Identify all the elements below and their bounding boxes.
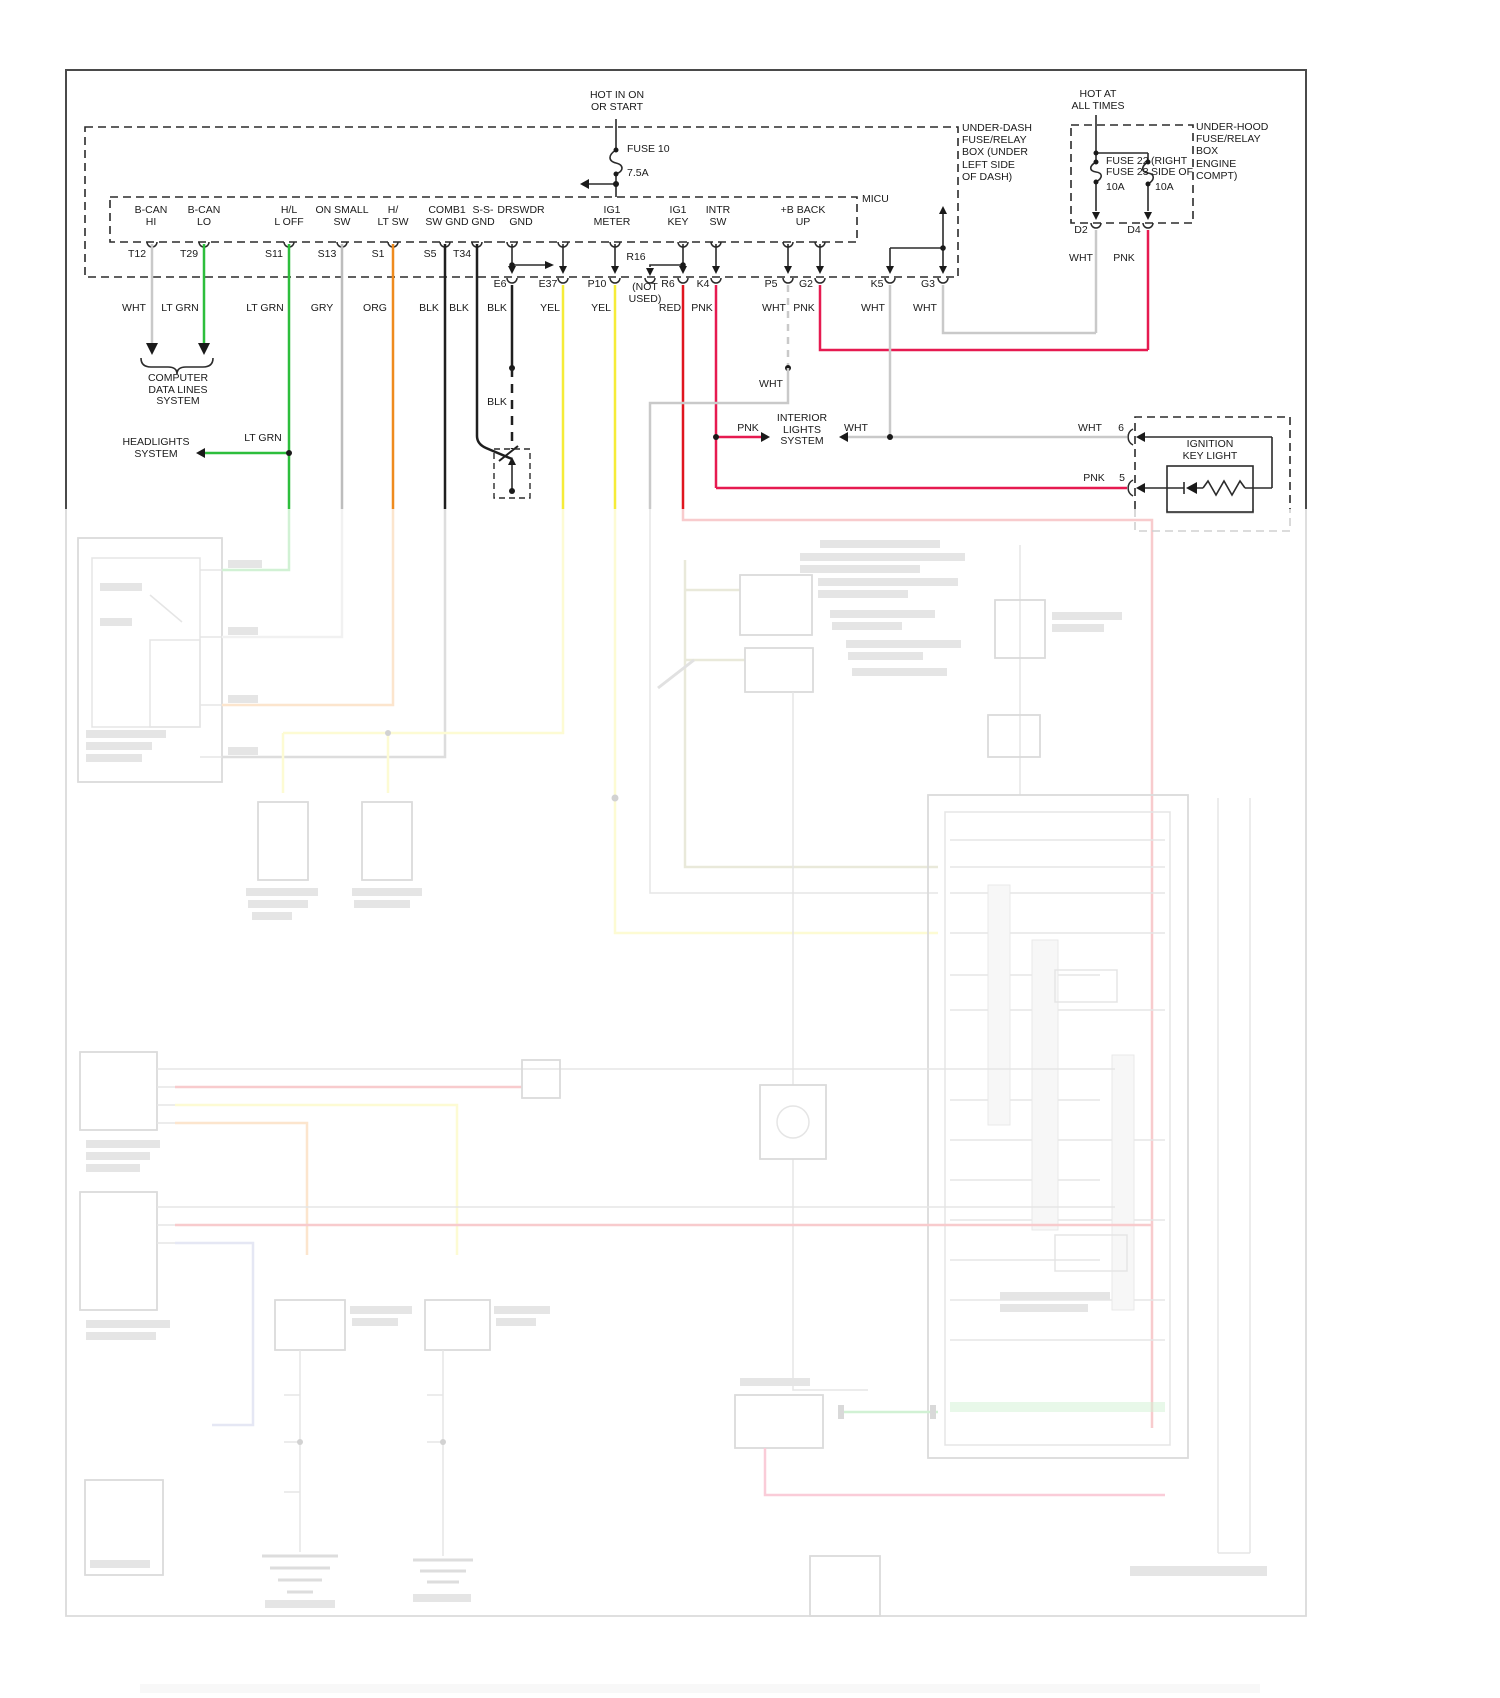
connector-pin-label: R16 xyxy=(626,252,645,264)
label-fuse22-amps: 10A xyxy=(1106,181,1125,193)
label-pin6: 6 xyxy=(1118,423,1124,435)
micu-signal-label: H/ LT SW xyxy=(377,205,408,228)
label-d4-color: PNK xyxy=(1113,253,1135,265)
connector-pin-label: E6 xyxy=(494,279,507,291)
micu-signal-label: B-CAN HI xyxy=(135,205,168,228)
labels-layer: HOT IN ON OR START FUSE 10 7.5A MICU UND… xyxy=(0,0,1500,1698)
connector-pin-label: P10 xyxy=(588,279,607,291)
terminal-label: S1 xyxy=(372,249,385,261)
wire-color-label: PNK xyxy=(691,303,713,315)
wire-color-label: LT GRN xyxy=(161,303,199,315)
micu-signal-label: IG1 METER xyxy=(594,205,631,228)
wire-color-label: BLK xyxy=(449,303,469,315)
label-headlights-color: LT GRN xyxy=(244,433,282,445)
label-interior-right-color: WHT xyxy=(844,423,868,435)
micu-signal-label: S-S- GND xyxy=(471,205,494,228)
wiring-diagram-page: HOT IN ON OR START FUSE 10 7.5A MICU UND… xyxy=(0,0,1500,1698)
label-underhood-box: UNDER-HOOD FUSE/RELAY BOX ENGINE COMPT) xyxy=(1196,121,1268,182)
connector-pin-label: G3 xyxy=(921,279,935,291)
micu-signal-label: INTR SW xyxy=(706,205,731,228)
micu-signal-label: H/L L OFF xyxy=(274,205,303,228)
wire-color-label: BLK xyxy=(487,303,507,315)
wire-color-label: WHT xyxy=(861,303,885,315)
label-pin6-color: WHT xyxy=(1078,423,1102,435)
label-fuse23: FUSE 23 xyxy=(1106,166,1149,178)
label-d2: D2 xyxy=(1074,225,1087,237)
label-interior-lights-system: INTERIOR LIGHTS SYSTEM xyxy=(777,413,827,448)
label-d2-color: WHT xyxy=(1069,253,1093,265)
wire-color-label: WHT xyxy=(762,303,786,315)
micu-signal-label: +B BACK UP xyxy=(781,205,826,228)
terminal-label: T34 xyxy=(453,249,471,261)
connector-pin-label: K4 xyxy=(697,279,710,291)
label-fuse10: FUSE 10 xyxy=(627,143,670,155)
label-p5-branch-color: WHT xyxy=(759,379,783,391)
label-hot-at-all-times: HOT AT ALL TIMES xyxy=(1071,89,1124,112)
label-micu: MICU xyxy=(862,193,889,205)
wire-color-label: BLK xyxy=(419,303,439,315)
micu-signal-label: COMB1 SW GND xyxy=(425,205,468,228)
wire-color-label: YEL xyxy=(540,303,560,315)
label-pin5-color: PNK xyxy=(1083,473,1105,485)
connector-pin-label: E37 xyxy=(539,279,558,291)
wire-color-label: RED xyxy=(659,303,681,315)
label-hot-in-on: HOT IN ON OR START xyxy=(590,90,644,113)
label-fuse23-amps: 10A xyxy=(1155,181,1174,193)
terminal-label: S5 xyxy=(424,249,437,261)
connector-pin-label: G2 xyxy=(799,279,813,291)
label-headlights-system: HEADLIGHTS SYSTEM xyxy=(122,437,189,460)
wire-color-label: GRY xyxy=(311,303,334,315)
label-ignition-key-light: IGNITION KEY LIGHT xyxy=(1183,439,1238,462)
wire-color-label: PNK xyxy=(793,303,815,315)
micu-signal-label: ON SMALL SW xyxy=(315,205,368,228)
terminal-label: S11 xyxy=(265,249,283,261)
label-interior-left-color: PNK xyxy=(737,423,759,435)
wire-color-label: WHT xyxy=(913,303,937,315)
micu-signal-label: B-CAN LO xyxy=(188,205,221,228)
label-fuse10-amps: 7.5A xyxy=(627,167,649,179)
wire-color-label: YEL xyxy=(591,303,611,315)
wire-color-label: BLK xyxy=(487,397,507,409)
label-computer-data-lines: COMPUTER DATA LINES SYSTEM xyxy=(148,373,208,408)
connector-pin-label: P5 xyxy=(765,279,778,291)
label-pin5: 5 xyxy=(1119,473,1125,485)
terminal-label: T12 xyxy=(128,249,146,261)
label-sideof-frag: SIDE OF xyxy=(1151,166,1193,178)
label-d4: D4 xyxy=(1127,225,1140,237)
terminal-label: T29 xyxy=(180,249,198,261)
wire-color-label: WHT xyxy=(122,303,146,315)
micu-signal-label: IG1 KEY xyxy=(667,205,688,228)
label-underdash-box: UNDER-DASH FUSE/RELAY BOX (UNDER LEFT SI… xyxy=(962,122,1032,183)
label-not-used: (NOT USED) xyxy=(629,282,662,305)
wire-color-label: LT GRN xyxy=(246,303,284,315)
terminal-label: S13 xyxy=(318,249,337,261)
connector-pin-label: R6 xyxy=(661,279,674,291)
wire-color-label: ORG xyxy=(363,303,387,315)
micu-signal-label: DRSWDR GND xyxy=(497,205,544,228)
connector-pin-label: K5 xyxy=(871,279,884,291)
